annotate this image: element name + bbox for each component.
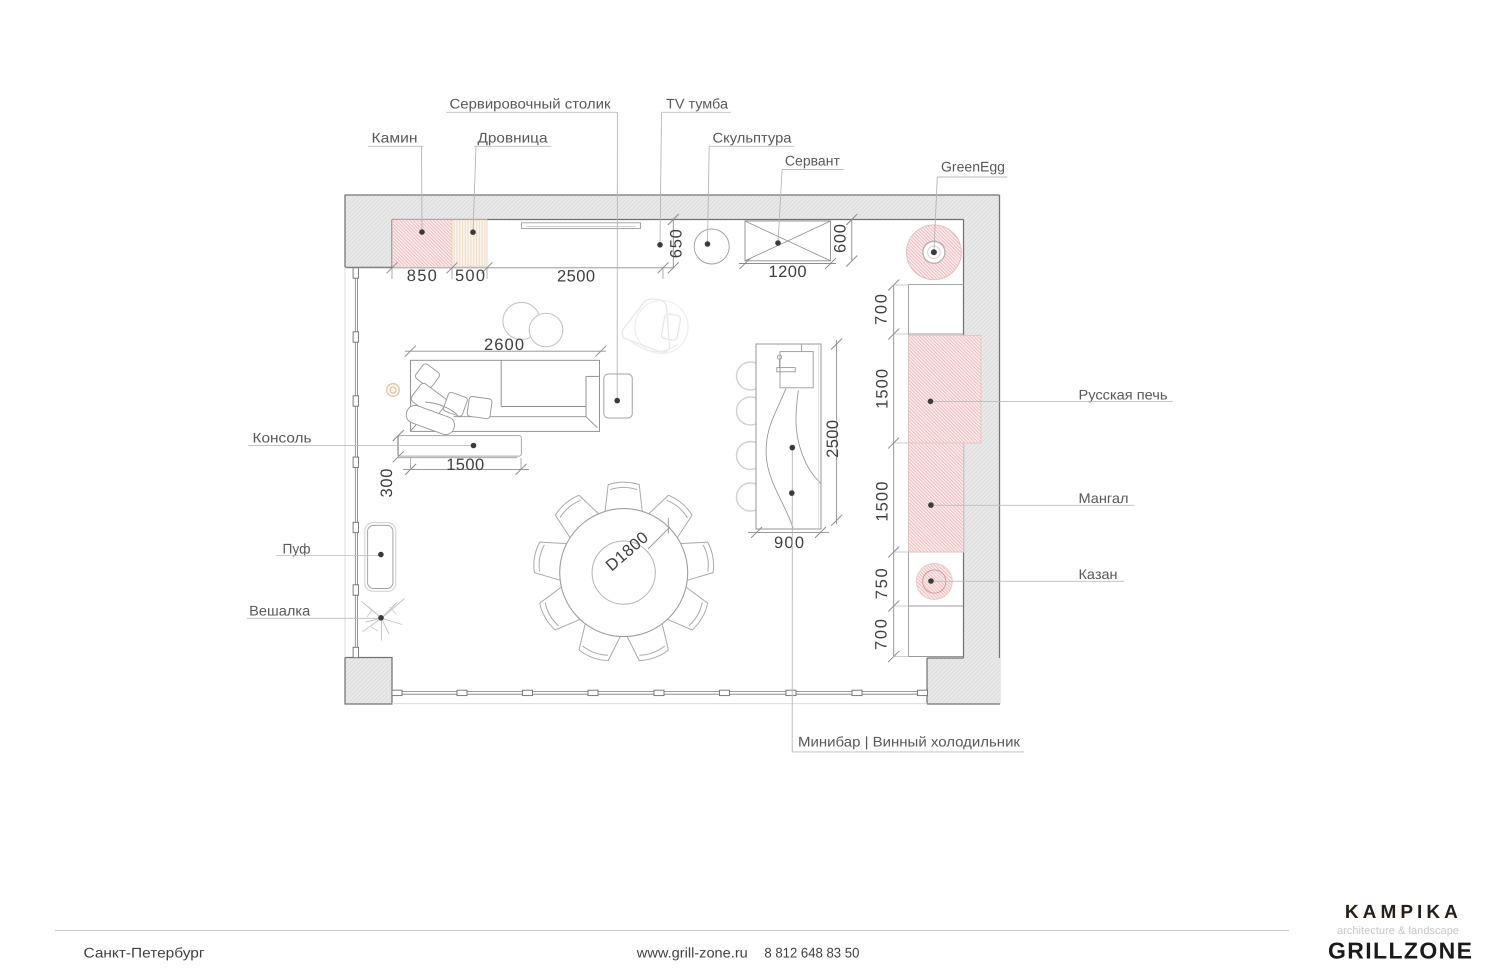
svg-text:Санкт-Петербург: Санкт-Петербург xyxy=(84,944,205,960)
svg-text:www.grill-zone.ru: www.grill-zone.ru xyxy=(636,944,748,960)
svg-text:GreenEgg: GreenEgg xyxy=(941,159,1005,175)
svg-text:850: 850 xyxy=(407,267,437,285)
svg-text:Мангал: Мангал xyxy=(1079,490,1129,506)
svg-text:Скульптура: Скульптура xyxy=(713,129,792,145)
svg-text:Консоль: Консоль xyxy=(253,430,312,446)
svg-text:Сервант: Сервант xyxy=(785,153,841,169)
svg-text:GRILLZONE: GRILLZONE xyxy=(1328,937,1472,963)
svg-text:architecture & landscape: architecture & landscape xyxy=(1337,925,1459,937)
svg-text:2600: 2600 xyxy=(484,336,524,354)
svg-text:Русская печь: Русская печь xyxy=(1079,387,1168,403)
svg-text:2500: 2500 xyxy=(824,420,842,458)
svg-text:Вешалка: Вешалка xyxy=(249,603,310,619)
svg-text:Дровница: Дровница xyxy=(478,129,548,145)
svg-text:650: 650 xyxy=(668,229,686,258)
svg-text:Минибар | Винный холодильник: Минибар | Винный холодильник xyxy=(798,734,1021,750)
svg-text:900: 900 xyxy=(774,534,804,552)
svg-text:1500: 1500 xyxy=(446,456,484,474)
svg-text:2500: 2500 xyxy=(557,268,595,286)
svg-text:750: 750 xyxy=(873,568,891,599)
svg-text:Пуф: Пуф xyxy=(283,541,311,557)
svg-text:TV тумба: TV тумба xyxy=(666,96,728,112)
svg-text:Камин: Камин xyxy=(372,129,418,145)
svg-text:700: 700 xyxy=(873,294,891,325)
svg-text:Казан: Казан xyxy=(1079,566,1118,582)
svg-text:1500: 1500 xyxy=(873,369,891,409)
svg-text:600: 600 xyxy=(832,224,850,253)
svg-text:700: 700 xyxy=(873,619,891,650)
svg-text:8 812 648 83 50: 8 812 648 83 50 xyxy=(764,944,859,960)
svg-text:Сервировочный столик: Сервировочный столик xyxy=(450,96,612,112)
svg-text:1500: 1500 xyxy=(873,482,891,522)
svg-text:300: 300 xyxy=(378,469,396,498)
svg-text:500: 500 xyxy=(455,267,485,285)
svg-text:1200: 1200 xyxy=(769,263,807,281)
